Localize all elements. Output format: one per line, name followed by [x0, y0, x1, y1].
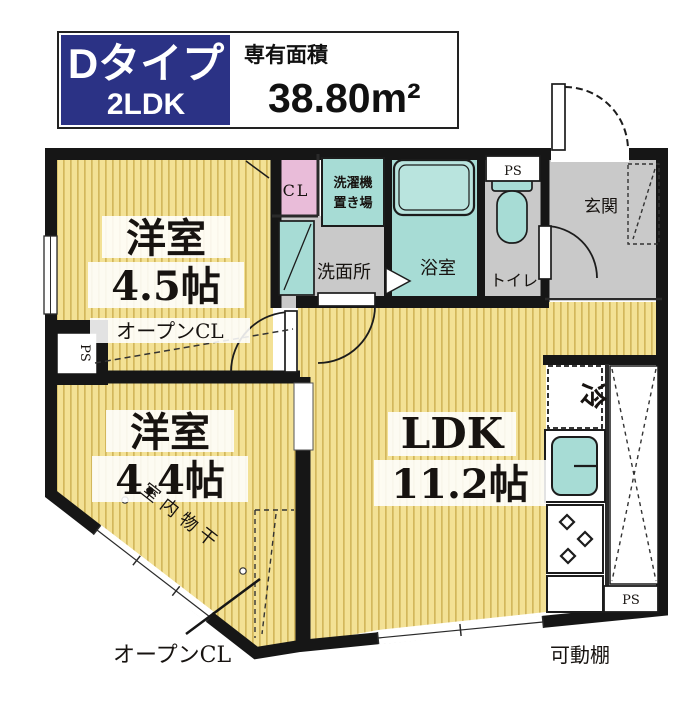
- ldk-size-label: 11.2帖: [391, 461, 528, 508]
- ldk-name-label: LDK: [401, 409, 505, 458]
- type-label: Dタイプ: [68, 40, 224, 87]
- laundry-label-line1: 洗濯機: [333, 175, 372, 191]
- entrance-label: 玄関: [584, 197, 618, 217]
- washroom-label: 洗面所: [317, 262, 371, 283]
- title-block: Dタイプ 2LDK 専有面積 38.80m²: [58, 32, 458, 128]
- open-closet-lower-label: オープンCL: [113, 643, 232, 668]
- laundry-space-box: [322, 158, 384, 226]
- bedroom2-doorway: [294, 383, 313, 450]
- toilet-label: トイレ: [490, 271, 538, 290]
- closet-label: CL: [283, 181, 310, 200]
- washbasin: [279, 221, 314, 295]
- movable-shelf-label: 可動棚: [550, 643, 610, 667]
- area-caption: 専有面積: [244, 43, 329, 67]
- stove: [547, 505, 603, 573]
- drying-pole-end-2: [240, 568, 246, 574]
- movable-shelf-closet: [604, 366, 658, 612]
- counter-end: [547, 576, 603, 612]
- entrance-floor: [548, 154, 662, 297]
- bathtub: [394, 160, 474, 215]
- ps-left-label: PS: [77, 344, 92, 362]
- floor-plan-canvas: 洋室 4.5帖 洋室 4.4帖 LDK 11.2帖 オープンCL オープンCL …: [0, 0, 696, 721]
- bedroom1-name-label: 洋室: [126, 215, 206, 262]
- bedroom1-size-label: 4.5帖: [111, 263, 221, 310]
- bathroom-label: 浴室: [420, 258, 456, 279]
- area-value: 38.80m²: [268, 75, 421, 121]
- laundry-label-line2: 置き場: [333, 195, 372, 211]
- layout-label: 2LDK: [107, 88, 186, 121]
- ps-kitchen-label: PS: [622, 593, 640, 608]
- floor-plan-page: 洋室 4.5帖 洋室 4.4帖 LDK 11.2帖 オープンCL オープンCL …: [0, 0, 696, 721]
- ps-toilet-label: PS: [504, 164, 522, 179]
- bedroom2-name-label: 洋室: [130, 409, 210, 456]
- open-closet-upper-label: オープンCL: [116, 319, 223, 343]
- entrance-door: [552, 84, 628, 150]
- bedroom1-window: [44, 236, 57, 314]
- fridge-label: 冷: [576, 383, 607, 410]
